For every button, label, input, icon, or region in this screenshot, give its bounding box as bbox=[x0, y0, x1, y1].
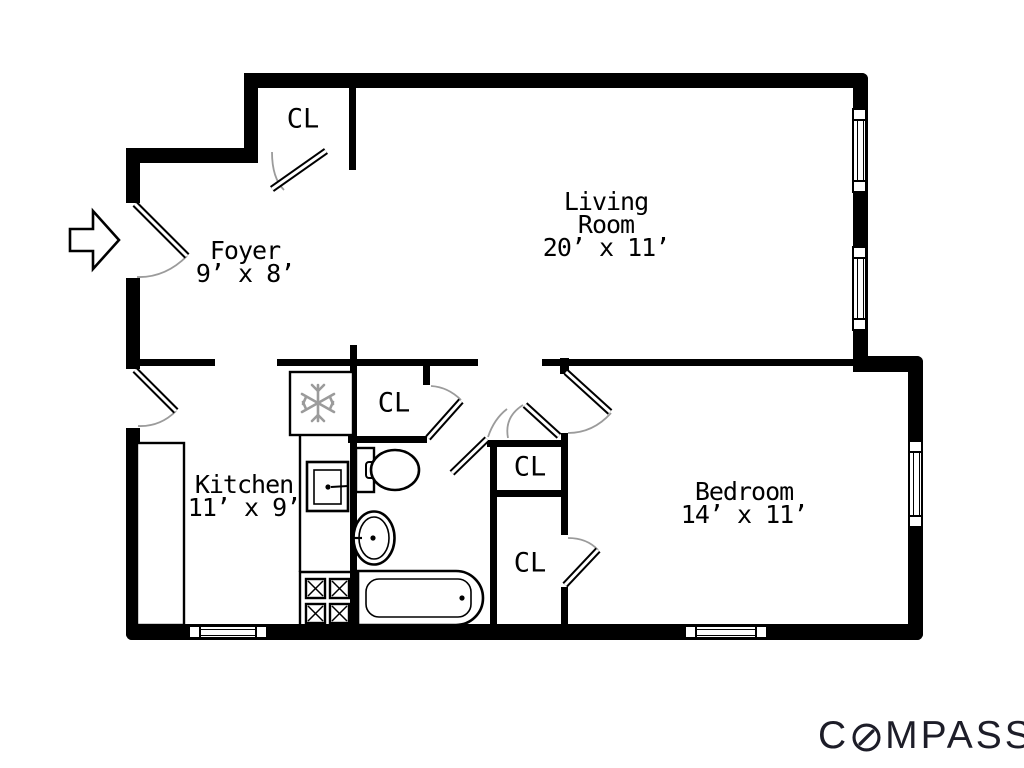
bathtub-fixture bbox=[358, 571, 483, 625]
entry-arrow-icon bbox=[70, 211, 119, 269]
bathroom-sink-fixture bbox=[354, 512, 395, 565]
kitchen-closet-door bbox=[428, 401, 461, 438]
fixtures-layer bbox=[0, 0, 1024, 768]
foyer-closet-door bbox=[272, 151, 326, 189]
upper-closet-door-arc bbox=[507, 405, 523, 438]
entry-door-arc bbox=[137, 256, 187, 277]
entry-door bbox=[135, 204, 187, 256]
kitchen-sink-fixture bbox=[307, 462, 348, 511]
bathroom-door-arc bbox=[488, 409, 507, 437]
kitchen-counter bbox=[137, 443, 184, 625]
lower-closet-door bbox=[565, 550, 598, 585]
floor-plan: Foyer 9’ x 8’ Living Room 20’ x 11’ Kitc… bbox=[0, 0, 1024, 768]
lower-closet-door-arc bbox=[568, 538, 598, 550]
bedroom-door bbox=[566, 372, 610, 412]
refrigerator-fixture bbox=[290, 372, 353, 435]
upper-closet-door bbox=[525, 405, 559, 436]
kitchen-door bbox=[135, 370, 176, 411]
toilet-fixture bbox=[356, 448, 419, 492]
kitchen-door-arc bbox=[138, 411, 176, 426]
bedroom-door-arc bbox=[568, 413, 611, 433]
kitchen-closet-door-arc bbox=[431, 386, 461, 400]
stove-fixture bbox=[300, 572, 352, 624]
bathroom-door bbox=[452, 439, 487, 473]
